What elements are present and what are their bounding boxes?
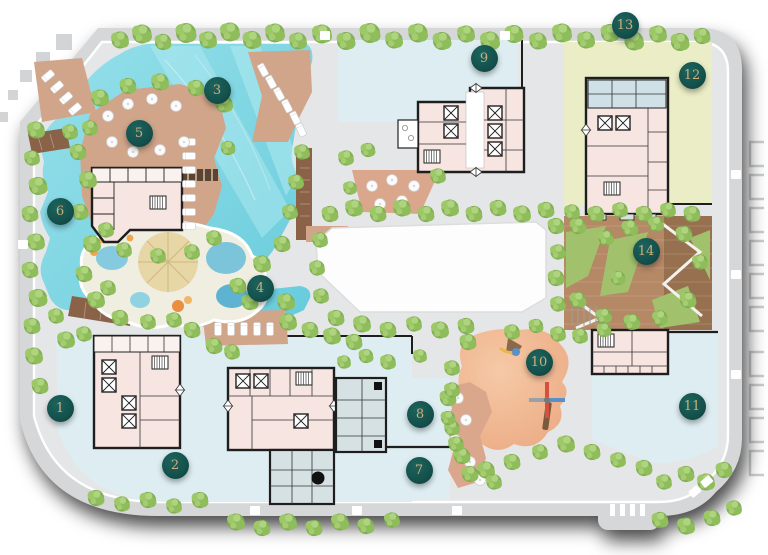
service-annex-building bbox=[270, 450, 334, 504]
service-building bbox=[336, 378, 386, 452]
building-bottom-left bbox=[94, 336, 185, 448]
marker-3[interactable]: 3 bbox=[204, 77, 231, 104]
building-bottom-middle bbox=[224, 368, 339, 450]
marker-11[interactable]: 11 bbox=[679, 393, 706, 420]
marker-5[interactable]: 5 bbox=[126, 120, 153, 147]
marker-6[interactable]: 6 bbox=[47, 198, 74, 225]
site-plan-canvas: 1234567891011121314 bbox=[0, 0, 768, 555]
site-plan-map bbox=[0, 0, 768, 555]
marker-10[interactable]: 10 bbox=[526, 349, 553, 376]
marker-12[interactable]: 12 bbox=[679, 62, 706, 89]
marker-9[interactable]: 9 bbox=[471, 45, 498, 72]
marker-14[interactable]: 14 bbox=[633, 238, 660, 265]
building-top-right bbox=[582, 78, 669, 220]
marker-13[interactable]: 13 bbox=[612, 12, 639, 39]
marker-8[interactable]: 8 bbox=[407, 401, 434, 428]
marker-1[interactable]: 1 bbox=[47, 395, 74, 422]
marker-4[interactable]: 4 bbox=[247, 275, 274, 302]
marker-7[interactable]: 7 bbox=[406, 457, 433, 484]
marker-2[interactable]: 2 bbox=[162, 452, 189, 479]
central-tower-footprint bbox=[316, 222, 546, 312]
